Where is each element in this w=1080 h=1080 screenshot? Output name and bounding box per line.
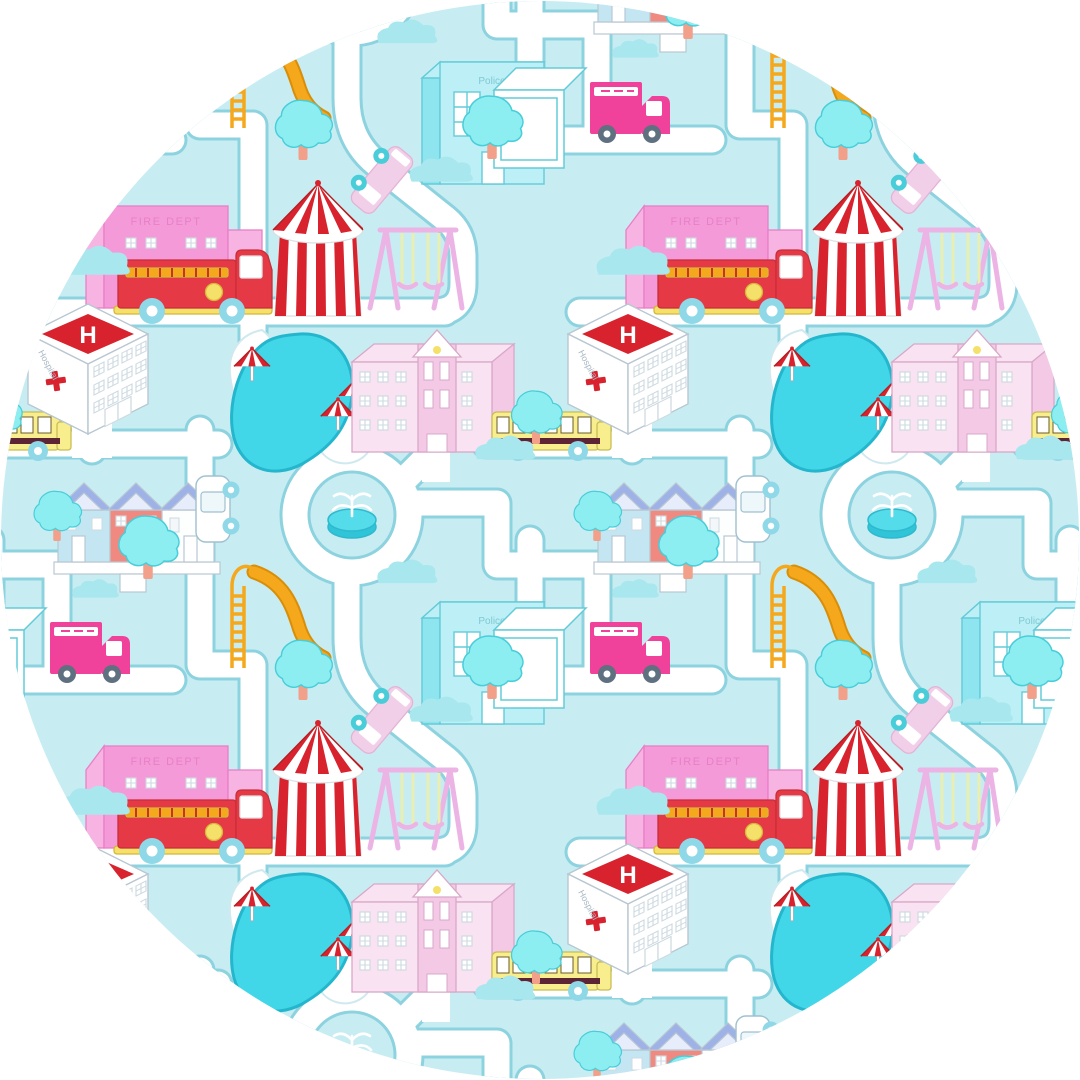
city-pattern-svg: H Hospital: [0, 0, 1080, 1080]
pattern-swatch-stage: H Hospital: [0, 0, 1080, 1080]
